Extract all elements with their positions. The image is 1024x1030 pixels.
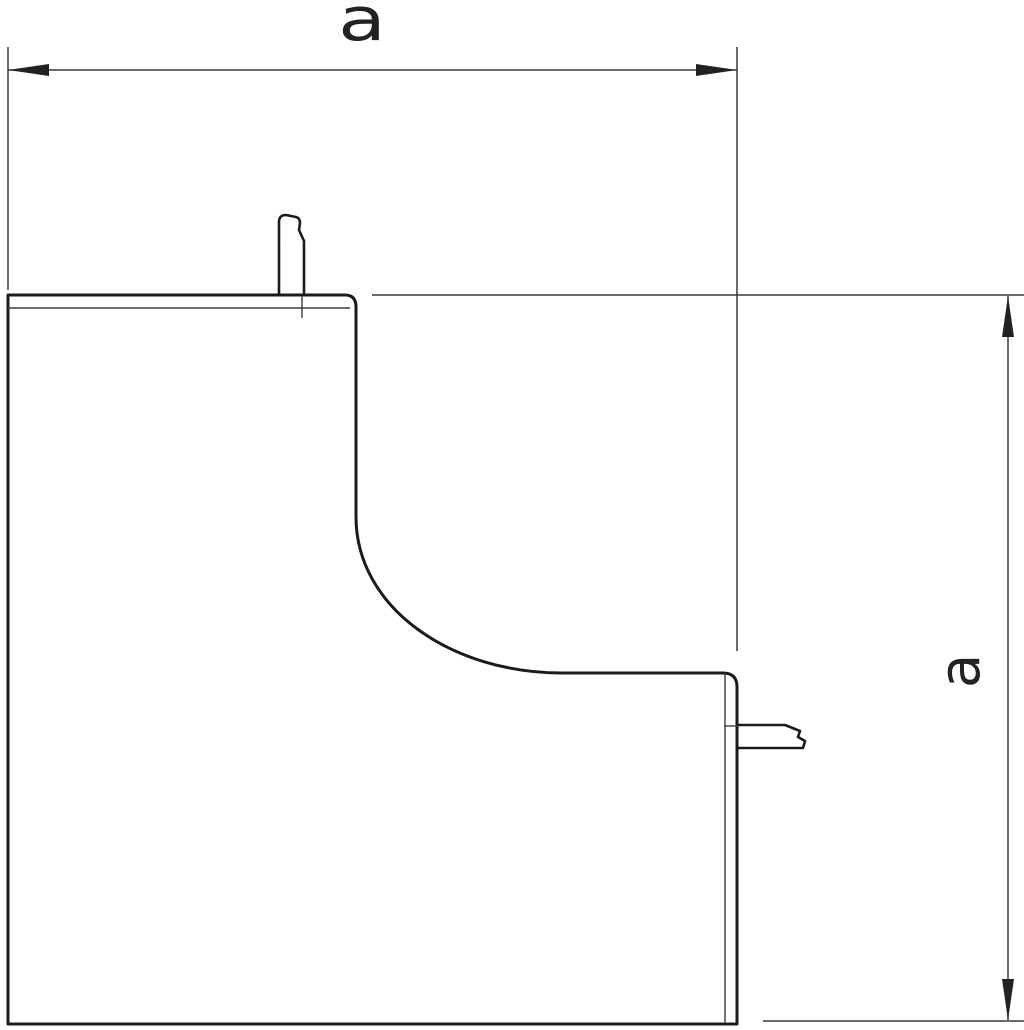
part-view xyxy=(8,215,805,1024)
horizontal-dimension: a xyxy=(8,0,737,651)
arrowhead-up-icon xyxy=(1002,296,1014,337)
arrowhead-right-icon xyxy=(696,64,737,76)
top-snap-tab xyxy=(279,215,304,294)
arrowhead-left-icon xyxy=(8,64,49,76)
arrowhead-down-icon xyxy=(1002,979,1014,1020)
drawing-canvas: a a xyxy=(0,0,1024,1030)
vertical-dimension-label: a xyxy=(928,654,993,688)
right-snap-tab xyxy=(738,725,805,748)
part-outline xyxy=(8,295,737,1024)
technical-drawing: a a xyxy=(0,0,1024,1030)
horizontal-dimension-label: a xyxy=(338,0,386,55)
